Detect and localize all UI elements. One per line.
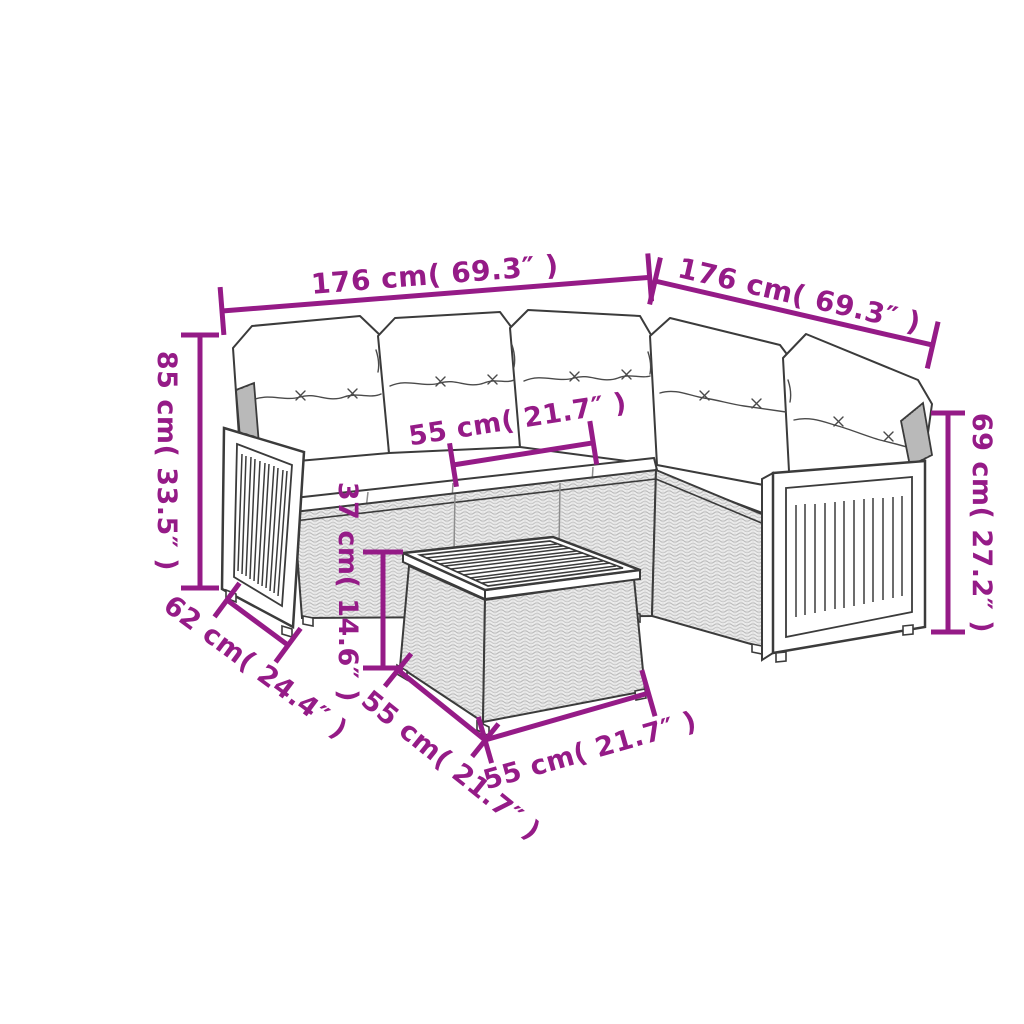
right-armrest-panel <box>762 461 925 662</box>
tick <box>220 287 224 335</box>
base-front-right-face <box>652 470 776 650</box>
label-armrest-height: 69 cm( 27.2″ ) <box>966 413 997 633</box>
product-dimension-diagram: 176 cm( 69.3″ ) 176 cm( 69.3″ ) 85 cm( 3… <box>0 0 1024 1024</box>
right-armrest-side-face <box>762 473 773 660</box>
back-cushion-4 <box>650 318 795 490</box>
dimension-armrest-height: 69 cm( 27.2″ ) <box>931 413 997 633</box>
dimension-back-height: 85 cm( 33.5″ ) <box>151 335 219 588</box>
label-table-width: 55 cm( 21.7″ ) <box>480 706 700 797</box>
back-cushion-3 <box>510 310 657 465</box>
label-table-height: 37 cm( 14.6″ ) <box>332 482 363 702</box>
label-back-height: 85 cm( 33.5″ ) <box>151 351 182 571</box>
sofa-set-drawing: 176 cm( 69.3″ ) 176 cm( 69.3″ ) 85 cm( 3… <box>0 0 1024 1024</box>
